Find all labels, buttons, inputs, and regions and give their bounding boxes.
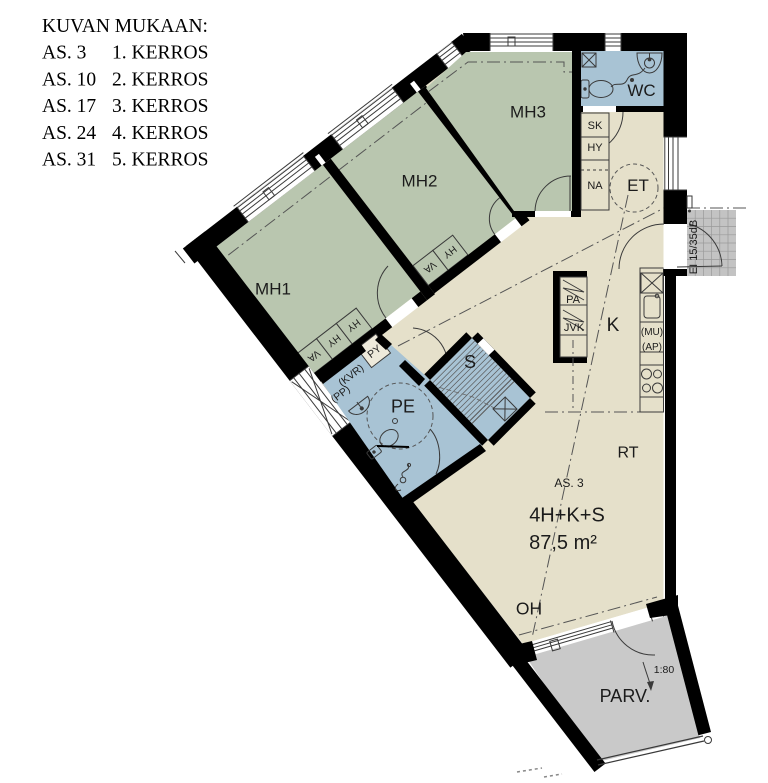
svg-text:1:80: 1:80: [654, 664, 675, 676]
svg-text:JVK: JVK: [564, 322, 585, 334]
svg-text:AS. 3: AS. 3: [554, 476, 584, 490]
svg-text:4H+K+S: 4H+K+S: [529, 505, 605, 527]
svg-text:KUVAN MUKAAN:: KUVAN MUKAAN:: [42, 16, 208, 37]
svg-text:EI 15/35dB: EI 15/35dB: [688, 220, 700, 274]
svg-text:2. KERROS: 2. KERROS: [112, 69, 208, 90]
svg-text:AS. 17: AS. 17: [42, 96, 96, 117]
svg-text:AS. 24: AS. 24: [42, 123, 96, 144]
svg-text:HY: HY: [587, 142, 603, 154]
svg-text:WC: WC: [627, 81, 655, 100]
svg-text:AS. 10: AS. 10: [42, 69, 96, 90]
svg-text:4. KERROS: 4. KERROS: [112, 123, 208, 144]
svg-text:1. KERROS: 1. KERROS: [112, 43, 208, 64]
svg-text:ET: ET: [627, 176, 649, 195]
svg-text:3. KERROS: 3. KERROS: [112, 96, 208, 117]
svg-text:MH2: MH2: [402, 172, 438, 191]
svg-text:S: S: [464, 352, 476, 372]
svg-text:AS. 31: AS. 31: [42, 150, 96, 171]
svg-text:PARV.: PARV.: [600, 686, 651, 706]
svg-text:5. KERROS: 5. KERROS: [112, 150, 208, 171]
svg-text:PE: PE: [391, 397, 415, 417]
svg-text:OH: OH: [516, 599, 542, 619]
svg-text:SK: SK: [588, 120, 603, 132]
svg-text:PA: PA: [566, 294, 581, 306]
svg-text:MH1: MH1: [255, 280, 291, 299]
svg-text:K: K: [607, 315, 620, 336]
svg-text:(MU): (MU): [641, 327, 663, 338]
svg-text:RT: RT: [617, 445, 638, 462]
svg-text:87,5 m²: 87,5 m²: [529, 532, 597, 554]
svg-text:(AP): (AP): [642, 342, 662, 353]
svg-text:AS. 3: AS. 3: [42, 43, 86, 64]
svg-text:NA: NA: [587, 180, 603, 192]
svg-text:MH3: MH3: [510, 103, 546, 122]
